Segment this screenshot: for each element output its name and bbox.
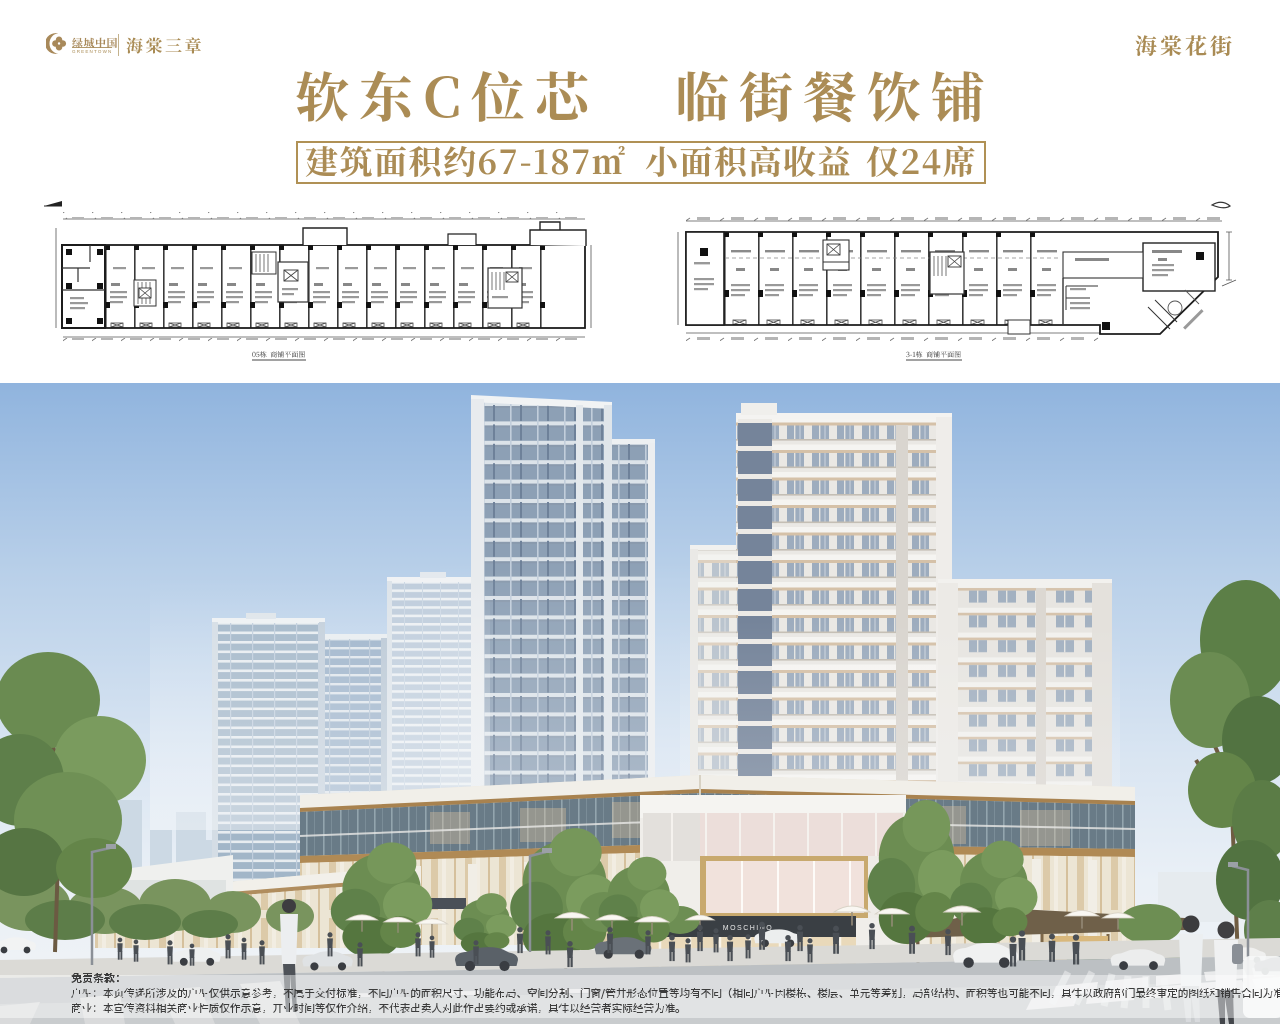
svg-text:MOSCHINO: MOSCHINO (723, 925, 774, 932)
